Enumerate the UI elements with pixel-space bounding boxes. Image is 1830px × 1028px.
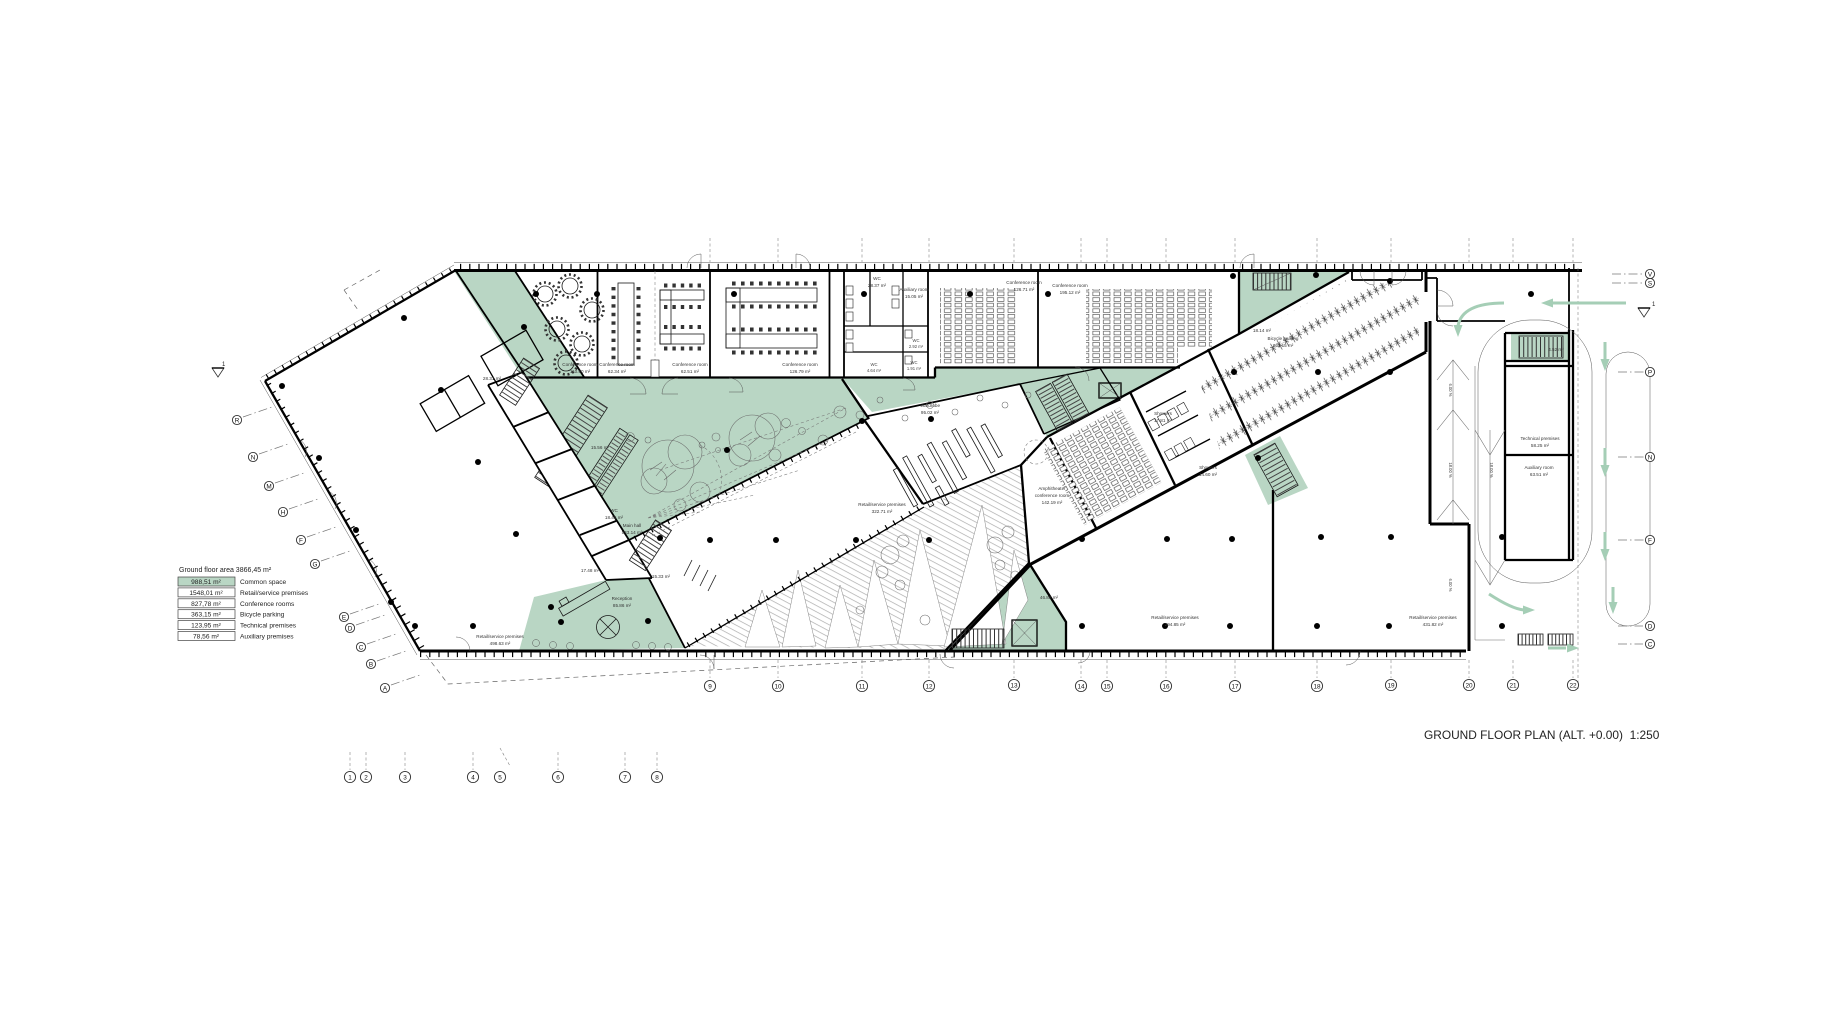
svg-text:F: F [299,538,303,545]
svg-text:20: 20 [1465,683,1473,690]
svg-text:C: C [1648,642,1653,649]
svg-text:15.56 m²: 15.56 m² [591,445,610,450]
svg-text:M: M [266,484,271,491]
svg-text:N: N [1648,455,1653,462]
svg-text:18.45 m²: 18.45 m² [605,515,624,520]
svg-text:Wardrobe: Wardrobe [920,403,940,408]
svg-text:294.85 m²: 294.85 m² [1165,622,1186,627]
svg-text:WC: WC [610,508,618,513]
svg-text:363,15 m²: 363,15 m² [191,612,221,619]
svg-text:Retail/service premises: Retail/service premises [1409,615,1457,620]
svg-text:Conference room: Conference room [672,362,708,367]
svg-text:P: P [1648,370,1652,377]
svg-text:9: 9 [708,684,712,691]
svg-text:Common space: Common space [240,579,287,586]
svg-text:17: 17 [1231,684,1239,691]
svg-text:988,51 m²: 988,51 m² [191,579,221,586]
svg-text:142.19 m²: 142.19 m² [1042,500,1063,505]
svg-text:1548,01 m²: 1548,01 m² [189,590,223,597]
svg-text:10: 10 [774,684,782,691]
svg-text:62.34 m²: 62.34 m² [608,369,627,374]
svg-text:8: 8 [655,775,659,782]
svg-text:Retail/service premises: Retail/service premises [858,502,906,507]
svg-text:B: B [369,662,373,669]
svg-text:Conference room: Conference room [782,362,818,367]
svg-text:22: 22 [1569,683,1577,690]
svg-text:431.82 m²: 431.82 m² [1423,622,1444,627]
svg-text:18: 18 [1313,684,1321,691]
svg-text:58.25 m²: 58.25 m² [1531,443,1550,448]
svg-text:15: 15 [1103,684,1111,691]
svg-text:15.33 m²: 15.33 m² [652,574,671,579]
svg-text:28.37 m²: 28.37 m² [868,283,887,288]
svg-text:28.31 m²: 28.31 m² [483,376,502,381]
svg-text:Conference room: Conference room [562,362,598,367]
svg-text:H: H [281,510,286,517]
svg-text:Retail/service premises: Retail/service premises [240,590,309,597]
svg-text:18.00 %: 18.00 % [1448,462,1453,478]
svg-text:V: V [1648,272,1653,279]
svg-text:1: 1 [348,775,352,782]
svg-text:A: A [383,686,388,693]
svg-text:WC: WC [873,276,881,281]
svg-text:498.63 m²: 498.63 m² [490,641,511,646]
svg-text:4.64 m²: 4.64 m² [867,368,882,373]
svg-text:Technical premises: Technical premises [240,623,297,630]
svg-text:G: G [313,562,318,569]
svg-text:78,56 m²: 78,56 m² [193,634,220,641]
svg-text:1.91 m²: 1.91 m² [907,366,922,371]
svg-text:2: 2 [364,775,368,782]
svg-text:363.15 m²: 363.15 m² [1273,343,1294,348]
svg-text:18.00 %: 18.00 % [1489,462,1494,478]
svg-text:Retail/service premises: Retail/service premises [1151,615,1199,620]
svg-text:GROUND FLOOR PLAN (ALT. +0.00): GROUND FLOOR PLAN (ALT. +0.00) 1:250 [1424,728,1660,742]
svg-text:R: R [235,418,240,425]
svg-text:3: 3 [403,775,407,782]
svg-text:15.05 m²: 15.05 m² [905,294,924,299]
svg-text:195.12 m²: 195.12 m² [1060,290,1081,295]
svg-text:Auxiliary room: Auxiliary room [899,287,928,292]
svg-text:110.50 m²: 110.50 m² [570,369,591,374]
svg-text:11: 11 [859,684,866,691]
svg-text:F: F [1648,538,1652,545]
svg-text:5: 5 [498,775,502,782]
svg-text:Main hall: Main hall [623,523,641,528]
svg-text:WC: WC [911,360,918,365]
svg-text:Conference room: Conference room [1052,283,1088,288]
svg-text:18.14 m²: 18.14 m² [1253,328,1272,333]
svg-text:E: E [342,615,346,622]
svg-text:16: 16 [1162,684,1170,691]
svg-text:21: 21 [1509,683,1517,690]
svg-text:conference room: conference room [1035,493,1070,498]
svg-text:14.60 m²: 14.60 m² [1199,472,1218,477]
svg-text:6: 6 [556,775,560,782]
svg-text:17.81 m²: 17.81 m² [1154,418,1173,423]
svg-text:Ground floor area 3866,45 m²: Ground floor area 3866,45 m² [179,567,272,574]
svg-text:Bicycle parking: Bicycle parking [240,612,285,619]
svg-text:Technical premises: Technical premises [1520,436,1560,441]
svg-text:85.86 m²: 85.86 m² [613,603,632,608]
svg-text:63.51 m²: 63.51 m² [1530,472,1549,477]
svg-text:Conference rooms: Conference rooms [240,601,295,608]
svg-text:2.92 m²: 2.92 m² [909,344,924,349]
svg-text:17.48 m²: 17.48 m² [581,568,600,573]
svg-text:62.51 m²: 62.51 m² [681,369,700,374]
svg-text:6.00 %: 6.00 % [1448,578,1453,591]
svg-text:827,78 m²: 827,78 m² [191,601,221,608]
svg-text:95.02 m²: 95.02 m² [921,410,940,415]
svg-text:123,95 m²: 123,95 m² [191,623,221,630]
svg-text:4.52 m²: 4.52 m² [1548,347,1564,352]
svg-text:S: S [1648,281,1652,288]
svg-text:N: N [251,455,256,462]
svg-text:12: 12 [925,684,933,691]
svg-text:Auxiliary room: Auxiliary room [1524,465,1553,470]
svg-text:Conference room: Conference room [1006,280,1042,285]
svg-text:7: 7 [623,775,627,782]
svg-text:19: 19 [1387,683,1395,690]
svg-text:Amphitheater: Amphitheater [1038,486,1066,491]
svg-text:Retail/service premises: Retail/service premises [476,634,524,639]
svg-text:Showers: Showers [1199,465,1218,470]
svg-text:46.88 m²: 46.88 m² [1040,595,1059,600]
svg-text:Auxiliary premises: Auxiliary premises [240,634,294,641]
svg-text:322.71 m²: 322.71 m² [872,509,893,514]
svg-text:1: 1 [1652,302,1656,308]
svg-text:126.71 m²: 126.71 m² [1014,287,1035,292]
svg-text:C: C [359,645,364,652]
svg-text:D: D [348,626,353,633]
svg-text:126.79 m²: 126.79 m² [790,369,811,374]
svg-text:Reception: Reception [612,596,633,601]
svg-text:Bicycle parking: Bicycle parking [1268,336,1299,341]
svg-text:WC: WC [871,362,878,367]
svg-text:14: 14 [1077,684,1085,691]
svg-text:13: 13 [1010,683,1018,690]
svg-text:4: 4 [471,775,475,782]
svg-text:Showers: Showers [1154,411,1173,416]
svg-text:1: 1 [222,362,226,368]
svg-text:543.14 m²: 543.14 m² [622,530,643,535]
svg-text:D: D [1648,624,1653,631]
svg-text:Conference room: Conference room [599,362,635,367]
svg-text:WC: WC [913,338,920,343]
svg-text:6.00 %: 6.00 % [1448,383,1453,396]
